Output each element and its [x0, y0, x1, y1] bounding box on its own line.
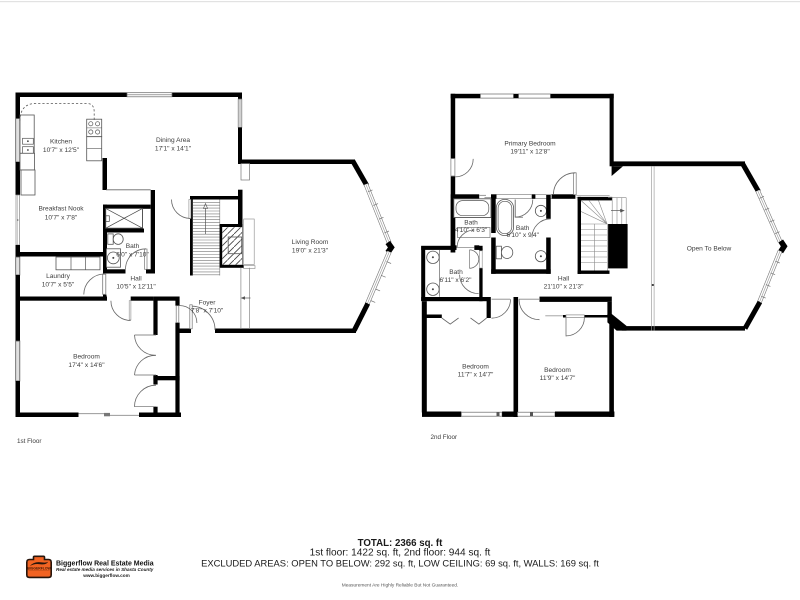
svg-text:Bath: Bath — [126, 243, 140, 250]
svg-text:2nd Floor: 2nd Floor — [431, 434, 458, 441]
svg-text:6'11" x 6'2": 6'11" x 6'2" — [439, 277, 472, 284]
svg-text:11'9" x 14'7": 11'9" x 14'7" — [540, 375, 576, 382]
svg-text:19'11" x 12'8": 19'11" x 12'8" — [510, 149, 550, 156]
svg-text:21'10" x 21'3": 21'10" x 21'3" — [544, 284, 584, 291]
svg-text:Open To Below: Open To Below — [687, 246, 732, 253]
svg-text:Bedroom: Bedroom — [544, 367, 571, 374]
svg-text:17'4" x 14'6": 17'4" x 14'6" — [68, 362, 105, 369]
svg-text:Bath: Bath — [464, 220, 478, 227]
svg-text:Kitchen: Kitchen — [50, 139, 72, 146]
svg-text:1st Floor: 1st Floor — [17, 438, 42, 445]
svg-text:Breakfast Nook: Breakfast Nook — [38, 206, 84, 213]
svg-text:BIGGERFLOW: BIGGERFLOW — [27, 566, 51, 570]
svg-text:4'10" x 6'3": 4'10" x 6'3" — [455, 227, 488, 234]
svg-text:Foyer: Foyer — [199, 300, 217, 307]
svg-text:Real estate media services in: Real estate media services in Shasta Cou… — [56, 567, 154, 572]
svg-text:7'8" x 7'10": 7'8" x 7'10" — [191, 308, 224, 315]
svg-text:Laundry: Laundry — [46, 273, 71, 280]
svg-text:10'5" x 12'11": 10'5" x 12'11" — [116, 284, 156, 291]
svg-text:19'0" x 21'3": 19'0" x 21'3" — [292, 248, 329, 255]
svg-text:Measurement Are Highly Reliabl: Measurement Are Highly Reliable But Not … — [342, 583, 459, 589]
svg-text:Hall: Hall — [130, 276, 142, 283]
svg-text:Hall: Hall — [558, 276, 570, 283]
svg-text:6'0" x 7'10": 6'0" x 7'10" — [116, 252, 149, 259]
svg-text:EXCLUDED AREAS: OPEN TO BELOW:: EXCLUDED AREAS: OPEN TO BELOW: 292 sq. f… — [201, 558, 599, 569]
svg-text:17'1" x 14'1": 17'1" x 14'1" — [155, 146, 192, 153]
svg-text:Bedroom: Bedroom — [73, 354, 100, 361]
svg-text:Dining Area: Dining Area — [156, 137, 190, 144]
svg-text:Bedroom: Bedroom — [462, 364, 489, 371]
svg-text:Primary Bedroom: Primary Bedroom — [504, 141, 556, 148]
svg-text:10'7" x 7'8": 10'7" x 7'8" — [45, 215, 78, 222]
svg-text:10'7" x 12'5": 10'7" x 12'5" — [43, 147, 80, 154]
svg-text:10'7" x 5'5": 10'7" x 5'5" — [42, 282, 75, 289]
svg-text:www.biggerflow.com: www.biggerflow.com — [82, 573, 130, 578]
svg-text:11'7" x 14'7": 11'7" x 14'7" — [458, 372, 494, 379]
svg-text:Bath: Bath — [449, 269, 463, 276]
svg-text:Living Room: Living Room — [292, 239, 329, 246]
svg-text:6'10" x 9'4": 6'10" x 9'4" — [506, 232, 539, 239]
